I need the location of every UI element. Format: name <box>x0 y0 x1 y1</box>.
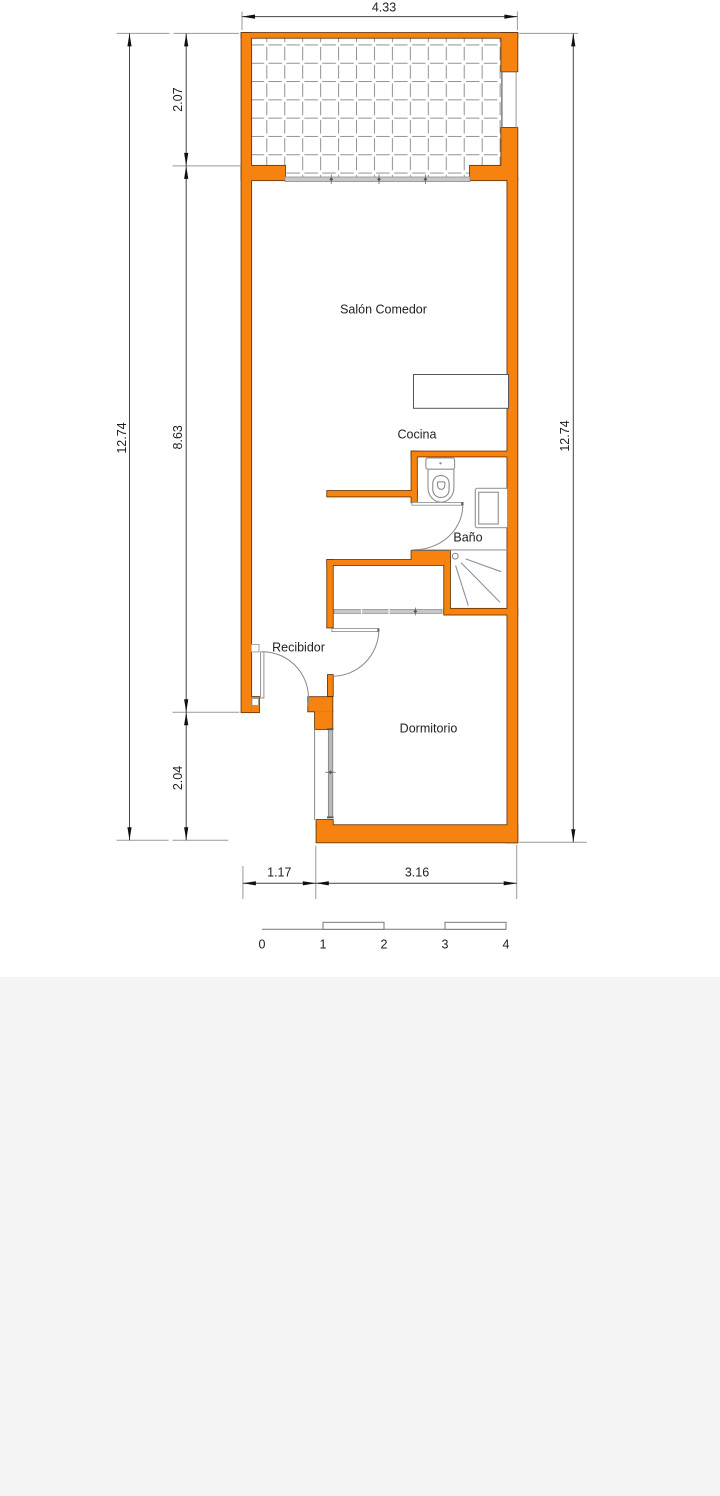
svg-text:3: 3 <box>442 938 449 952</box>
svg-text:8.63: 8.63 <box>171 425 185 449</box>
svg-text:2: 2 <box>381 938 388 952</box>
svg-text:1: 1 <box>320 938 327 952</box>
svg-text:3.16: 3.16 <box>405 866 429 880</box>
svg-text:Dormitorio: Dormitorio <box>400 722 458 736</box>
svg-text:Salón Comedor: Salón Comedor <box>340 303 427 317</box>
svg-text:12.74: 12.74 <box>115 422 129 453</box>
svg-text:4: 4 <box>503 938 510 952</box>
svg-text:0: 0 <box>259 938 266 952</box>
svg-text:12.74: 12.74 <box>558 420 572 451</box>
svg-text:2.04: 2.04 <box>171 766 185 790</box>
svg-text:Cocina: Cocina <box>398 428 437 442</box>
svg-text:1.17: 1.17 <box>267 866 291 880</box>
svg-text:Baño: Baño <box>453 530 482 544</box>
svg-text:2.07: 2.07 <box>171 87 185 111</box>
svg-text:4.33: 4.33 <box>372 1 396 15</box>
svg-text:Recibidor: Recibidor <box>272 640 325 654</box>
